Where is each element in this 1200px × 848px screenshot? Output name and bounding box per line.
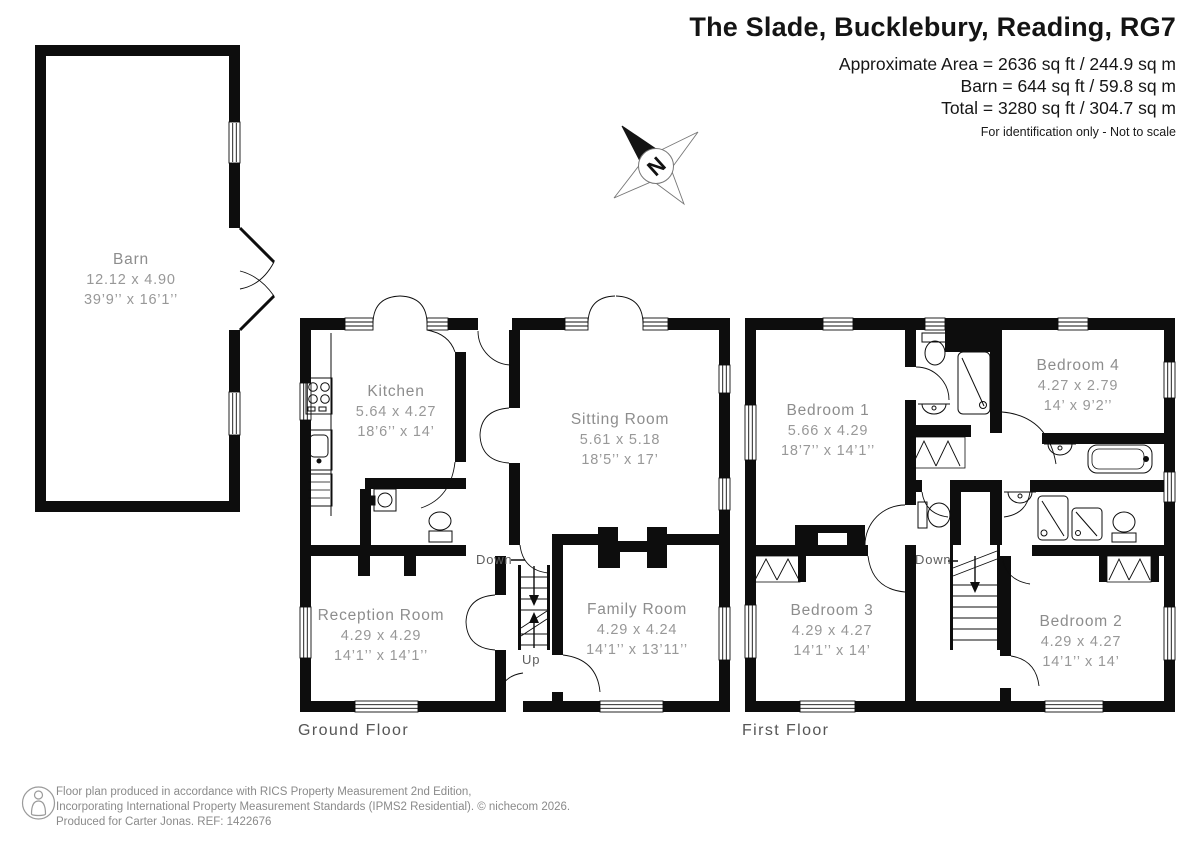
page-title: The Slade, Bucklebury, Reading, RG7 (689, 12, 1176, 43)
approximate-area-line: Approximate Area = 2636 sq ft / 244.9 sq… (689, 53, 1176, 75)
footer-disclaimer: Floor plan produced in accordance with R… (56, 785, 570, 830)
ground-floor-stairs (511, 560, 550, 650)
wardrobe-bedroom3-icon (753, 556, 800, 582)
footer-line-2: Incorporating International Property Mea… (56, 800, 570, 815)
bathroom-basin-icon (1044, 444, 1076, 455)
wc-basin-icon (369, 489, 396, 511)
first-chimney-notch (818, 533, 847, 545)
first-floor-stairs (948, 540, 1000, 650)
first-down-label: Down (915, 552, 951, 567)
shower2-icon (1072, 508, 1102, 540)
room-label-kitchen: Kitchen 5.64 x 4.27 18’6’’ x 14’ (356, 382, 437, 442)
room-label-reception-room: Reception Room 4.29 x 4.29 14’1’’ x 14’1… (318, 606, 445, 666)
wc-toilet-icon (429, 512, 452, 542)
room-label-family-room: Family Room 4.29 x 4.24 14’1’’ x 13’11’’ (586, 600, 688, 660)
wc2-toilet-icon (918, 502, 950, 528)
room-label-bedroom-4: Bedroom 4 4.27 x 2.79 14’ x 9’2’’ (1036, 356, 1119, 416)
barn-double-door (240, 228, 274, 330)
barn-area-line: Barn = 644 sq ft / 59.8 sq m (689, 75, 1176, 97)
header: The Slade, Bucklebury, Reading, RG7 Appr… (689, 12, 1176, 139)
room-label-sitting-room: Sitting Room 5.61 x 5.18 18’5’’ x 17’ (571, 410, 669, 470)
total-area-line: Total = 3280 sq ft / 304.7 sq m (689, 97, 1176, 119)
ground-up-label: Up (522, 652, 540, 667)
room-label-bedroom-3: Bedroom 3 4.29 x 4.27 14’1’’ x 14’ (790, 601, 873, 661)
ensuite-basin-icon (918, 404, 950, 414)
footer-line-3: Produced for Carter Jonas. REF: 1422676 (56, 815, 570, 830)
floorplan-page: N (0, 0, 1200, 848)
footer-person-icon (23, 787, 55, 819)
ensuite-toilet-icon (922, 333, 948, 365)
room-label-bedroom-2: Bedroom 2 4.29 x 4.27 14’1’’ x 14’ (1039, 612, 1122, 672)
room-label-barn: Barn 12.12 x 4.90 39’9’’ x 16’1’’ (84, 250, 178, 310)
compass-rose: N (614, 126, 698, 204)
ground-down-label: Down (476, 552, 512, 567)
room-label-bedroom-1: Bedroom 1 5.66 x 4.29 18’7’’ x 14’1’’ (781, 401, 875, 461)
wardrobe-bedroom2-icon (1107, 556, 1151, 582)
wardrobe-landing-icon (910, 437, 965, 468)
shower-room-basin-icon (1004, 492, 1036, 503)
bath-icon (1088, 445, 1152, 473)
ensuite-shower-icon (958, 352, 990, 414)
shower-icon (1038, 496, 1068, 540)
toilet2-icon (1112, 512, 1136, 542)
disclaimer-note: For identification only - Not to scale (689, 125, 1176, 139)
first-floor-label: First Floor (742, 722, 829, 740)
footer-line-1: Floor plan produced in accordance with R… (56, 785, 570, 800)
ground-floor-label: Ground Floor (298, 722, 409, 740)
